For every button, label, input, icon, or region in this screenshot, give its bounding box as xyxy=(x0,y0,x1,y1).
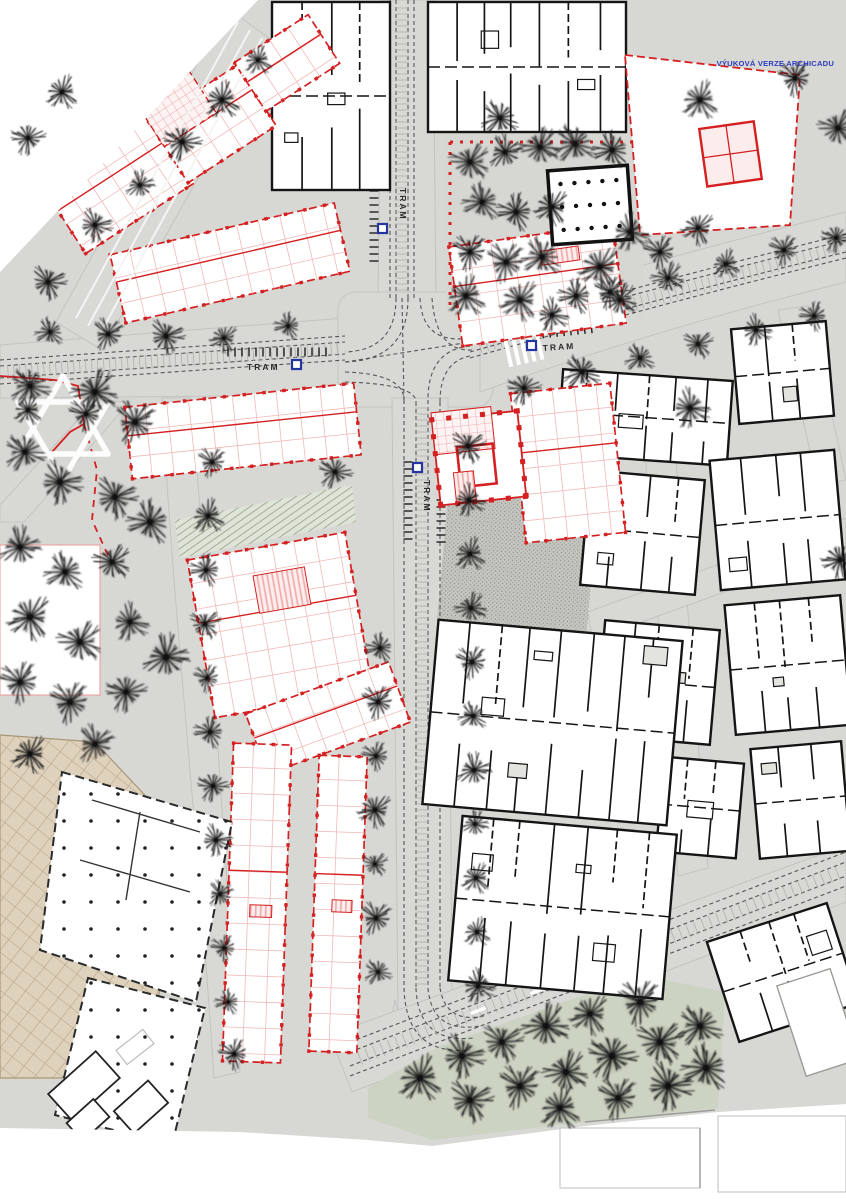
site-plan-canvas: TRAM TRAM TRAM TRAM VÝUKOVÁ VERZE ARCHIC… xyxy=(0,0,846,1200)
existing-building xyxy=(750,741,846,859)
proposed-compound-topright xyxy=(625,55,800,235)
tram-stop-label: TRAM xyxy=(398,188,408,221)
existing-building xyxy=(448,816,677,999)
existing-building xyxy=(710,450,846,590)
tram-stop-label: TRAM xyxy=(422,480,432,513)
existing-building xyxy=(725,595,846,735)
proposed-building xyxy=(509,381,628,544)
tram-stop-icon xyxy=(413,463,422,472)
tram-stop-label: TRAM xyxy=(247,362,280,372)
tram-stop-icon xyxy=(378,224,387,233)
tram-stop-icon xyxy=(292,360,301,369)
tram-stop-icon xyxy=(527,341,536,350)
plan-page: TRAM TRAM TRAM TRAM VÝUKOVÁ VERZE ARCHIC… xyxy=(0,0,846,1200)
archicad-watermark: VÝUKOVÁ VERZE ARCHICADU xyxy=(717,59,835,68)
existing-building xyxy=(428,2,626,132)
